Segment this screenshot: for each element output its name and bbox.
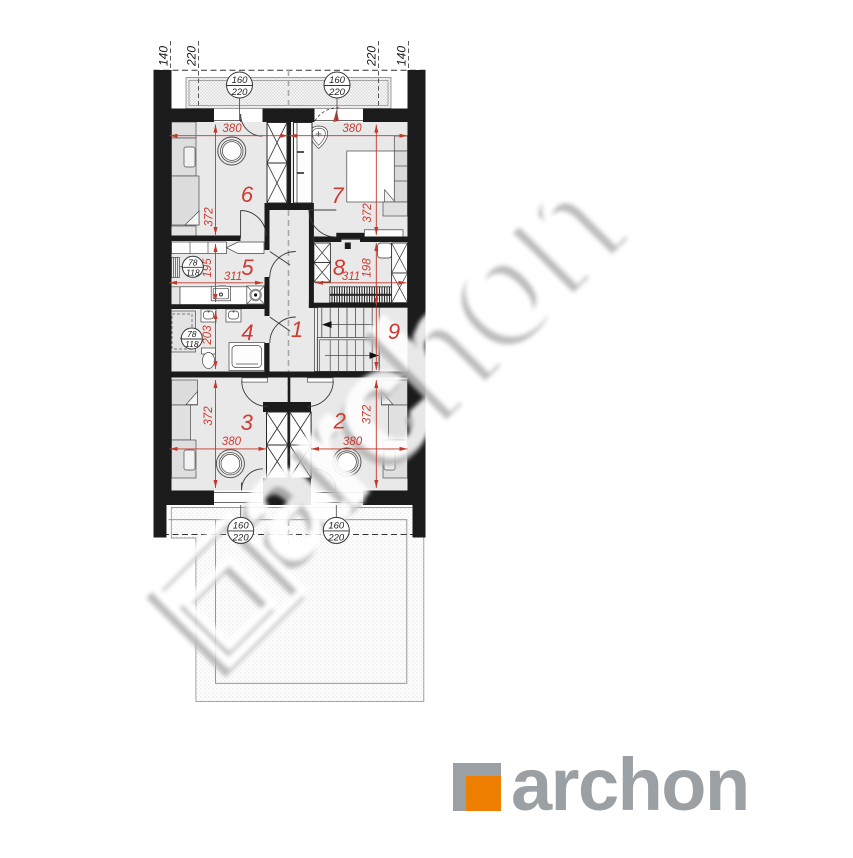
svg-text:380: 380 [222, 123, 242, 135]
svg-text:220: 220 [232, 532, 250, 543]
svg-text:372: 372 [362, 203, 374, 223]
svg-text:160: 160 [329, 75, 346, 86]
svg-text:311: 311 [224, 271, 242, 283]
svg-text:380: 380 [343, 436, 363, 448]
svg-text:380: 380 [222, 436, 242, 448]
svg-text:372: 372 [361, 404, 373, 424]
svg-text:7: 7 [331, 183, 344, 208]
svg-text:78: 78 [187, 329, 197, 339]
svg-text:198: 198 [362, 258, 374, 278]
svg-text:4: 4 [241, 320, 253, 345]
svg-text:160: 160 [233, 520, 250, 531]
svg-text:220: 220 [327, 532, 345, 543]
svg-text:140: 140 [395, 46, 409, 66]
svg-text:220: 220 [365, 46, 379, 67]
svg-text:6: 6 [241, 182, 254, 207]
svg-text:1: 1 [291, 317, 303, 342]
svg-text:118: 118 [186, 267, 200, 277]
svg-text:9: 9 [388, 319, 400, 344]
svg-text:220: 220 [328, 87, 346, 98]
svg-text:380: 380 [342, 123, 362, 135]
svg-text:5: 5 [241, 255, 254, 280]
svg-text:3: 3 [241, 410, 254, 435]
svg-text:372: 372 [203, 406, 215, 426]
svg-text:220: 220 [185, 46, 199, 67]
svg-text:160: 160 [328, 520, 345, 531]
svg-text:archon: archon [511, 743, 749, 826]
svg-text:118: 118 [185, 339, 199, 349]
svg-text:78: 78 [188, 257, 198, 267]
svg-text:203: 203 [202, 325, 214, 346]
svg-text:140: 140 [157, 46, 171, 66]
svg-text:195: 195 [202, 258, 214, 278]
svg-text:372: 372 [204, 207, 216, 227]
svg-text:160: 160 [232, 75, 249, 86]
svg-text:220: 220 [231, 87, 249, 98]
svg-text:2: 2 [333, 408, 346, 433]
svg-text:8: 8 [333, 255, 346, 280]
